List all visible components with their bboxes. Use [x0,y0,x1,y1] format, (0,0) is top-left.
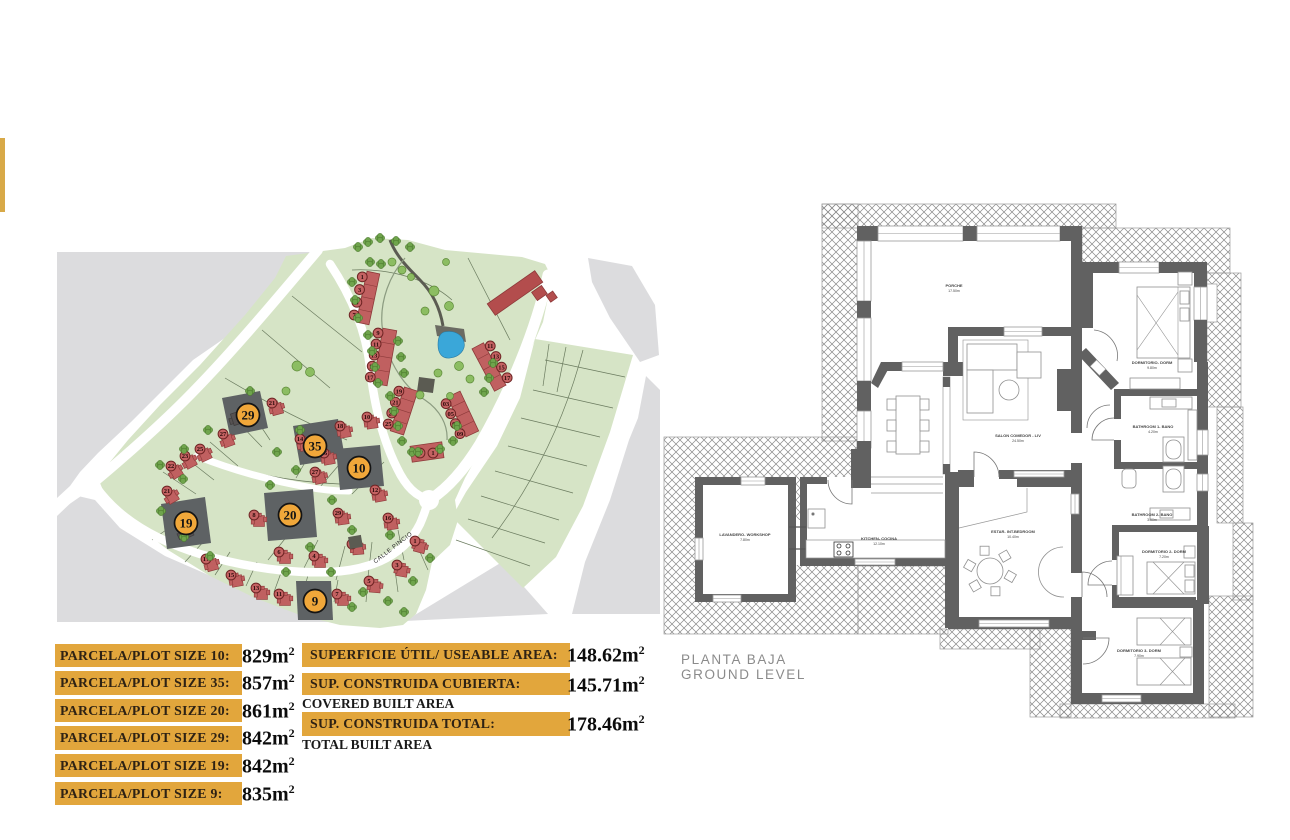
svg-text:05: 05 [447,411,454,418]
svg-text:29: 29 [335,510,342,517]
svg-text:19: 19 [396,388,403,395]
svg-text:1: 1 [431,450,434,457]
svg-text:DORMITORIO 2- DORM: DORMITORIO 2- DORM [1142,549,1187,554]
svg-text:09: 09 [457,431,464,438]
svg-text:ESTAR- INT.BEDROOM: ESTAR- INT.BEDROOM [991,529,1035,534]
svg-text:SALON COMEDOR - LIV: SALON COMEDOR - LIV [995,433,1041,438]
svg-text:24.50m: 24.50m [1012,439,1024,443]
svg-text:12: 12 [372,487,379,494]
svg-text:17.50m: 17.50m [948,289,960,293]
svg-text:1: 1 [361,274,364,281]
svg-text:21: 21 [269,400,276,407]
svg-text:BATHROOM 2- BANO: BATHROOM 2- BANO [1132,512,1173,517]
svg-text:29: 29 [242,408,256,423]
svg-text:27: 27 [312,469,319,476]
svg-text:DORMITORIO- DORM: DORMITORIO- DORM [1132,360,1173,365]
svg-text:11: 11 [487,343,493,350]
svg-text:19: 19 [180,516,194,531]
svg-text:17: 17 [504,375,511,382]
svg-text:20: 20 [284,508,297,523]
svg-text:KITCHEN- COCINA: KITCHEN- COCINA [861,536,897,541]
svg-text:BATHROOM 1- BANO: BATHROOM 1- BANO [1133,424,1174,429]
svg-text:1: 1 [413,538,416,545]
svg-text:10: 10 [353,461,366,476]
svg-text:7.90m: 7.90m [1134,654,1144,658]
svg-text:27: 27 [220,431,227,438]
svg-text:35: 35 [309,439,323,454]
svg-text:7.80m: 7.80m [740,538,750,542]
svg-text:9.80m: 9.80m [1147,366,1157,370]
svg-text:3.90m: 3.90m [1147,518,1157,522]
svg-text:11: 11 [276,591,282,598]
svg-text:15: 15 [498,364,505,371]
svg-text:21: 21 [392,399,399,406]
svg-text:10.40m: 10.40m [1007,535,1019,539]
svg-text:15: 15 [228,572,235,579]
svg-text:PORCHE: PORCHE [945,283,962,288]
svg-text:21: 21 [164,488,171,495]
svg-text:18: 18 [337,423,344,430]
svg-text:13: 13 [253,585,260,592]
svg-text:17: 17 [367,374,374,381]
svg-text:7.20m: 7.20m [1159,555,1169,559]
svg-text:03: 03 [443,401,450,408]
svg-text:14: 14 [297,436,304,443]
svg-text:25: 25 [385,421,392,428]
svg-text:22: 22 [168,463,175,470]
svg-text:9: 9 [312,594,319,609]
svg-text:25: 25 [197,446,204,453]
svg-text:16: 16 [385,515,392,522]
svg-text:12.10m: 12.10m [873,542,885,546]
svg-text:LAVANDERO- WORKSHOP: LAVANDERO- WORKSHOP [719,532,771,537]
svg-text:4.20m: 4.20m [1148,430,1158,434]
svg-text:10: 10 [364,414,371,421]
svg-text:23: 23 [182,453,189,460]
svg-text:DORMITORIO 3- DORM: DORMITORIO 3- DORM [1117,648,1162,653]
